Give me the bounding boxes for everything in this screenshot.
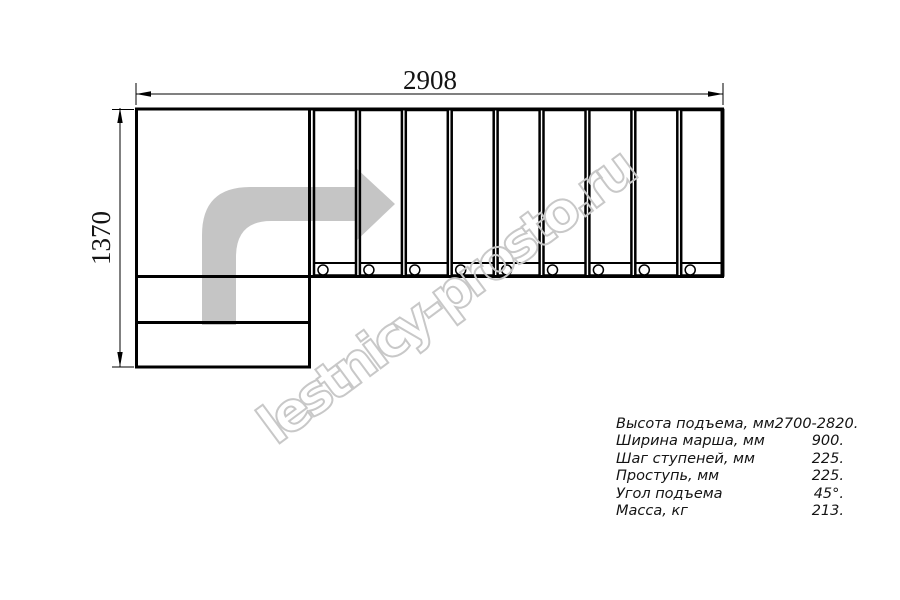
dimension-arrow-icon bbox=[117, 352, 122, 367]
spec-row: Проступь, мм225. bbox=[616, 468, 844, 485]
spec-row: Ширина марша, мм900. bbox=[616, 433, 844, 450]
step-mount-circle bbox=[593, 265, 603, 275]
flight-step bbox=[635, 110, 677, 276]
spec-row-value: 225. bbox=[812, 468, 844, 485]
spec-row-label: Угол подъема bbox=[616, 486, 723, 503]
flight-step bbox=[681, 110, 723, 276]
spec-row-value: 213. bbox=[812, 503, 844, 520]
spec-row-label: Проступь, мм bbox=[616, 468, 719, 485]
step-mount-circle bbox=[364, 265, 374, 275]
step-mount-circle bbox=[410, 265, 420, 275]
spec-row-value: 45°. bbox=[814, 486, 844, 503]
dimension-arrow-icon bbox=[708, 91, 723, 96]
flight-step bbox=[406, 110, 448, 276]
spec-row: Масса, кг213. bbox=[616, 503, 844, 520]
spec-row-value: 225. bbox=[812, 451, 844, 468]
dimension-arrow-icon bbox=[117, 108, 122, 123]
step-mount-circle bbox=[639, 265, 649, 275]
spec-row-value: 2700-2820. bbox=[775, 416, 859, 433]
dimension-top: 2908 bbox=[136, 65, 723, 105]
spec-row-label: Масса, кг bbox=[616, 503, 688, 520]
staircase-drawing-page: 2908 1370 lestnicy-prosto.ru Высота подъ… bbox=[0, 0, 900, 600]
dimension-left: 1370 bbox=[86, 108, 134, 367]
step-mount-circle bbox=[318, 265, 328, 275]
spec-row-value: 900. bbox=[812, 433, 844, 450]
spec-row-label: Ширина марша, мм bbox=[616, 433, 765, 450]
dimension-arrow-icon bbox=[136, 91, 151, 96]
dimension-width-label: 1370 bbox=[86, 211, 116, 265]
step-mount-circle bbox=[685, 265, 695, 275]
spec-row-label: Высота подъема, мм bbox=[616, 416, 775, 433]
spec-row: Шаг ступеней, мм225. bbox=[616, 451, 844, 468]
spec-table: Высота подъема, мм2700-2820.Ширина марша… bbox=[616, 416, 844, 520]
direction-arrow-icon bbox=[202, 167, 395, 325]
spec-row: Высота подъема, мм2700-2820. bbox=[616, 416, 844, 433]
spec-row-label: Шаг ступеней, мм bbox=[616, 451, 755, 468]
step-mount-circle bbox=[548, 265, 558, 275]
dimension-length-label: 2908 bbox=[403, 65, 457, 95]
spec-row: Угол подъема45°. bbox=[616, 486, 844, 503]
